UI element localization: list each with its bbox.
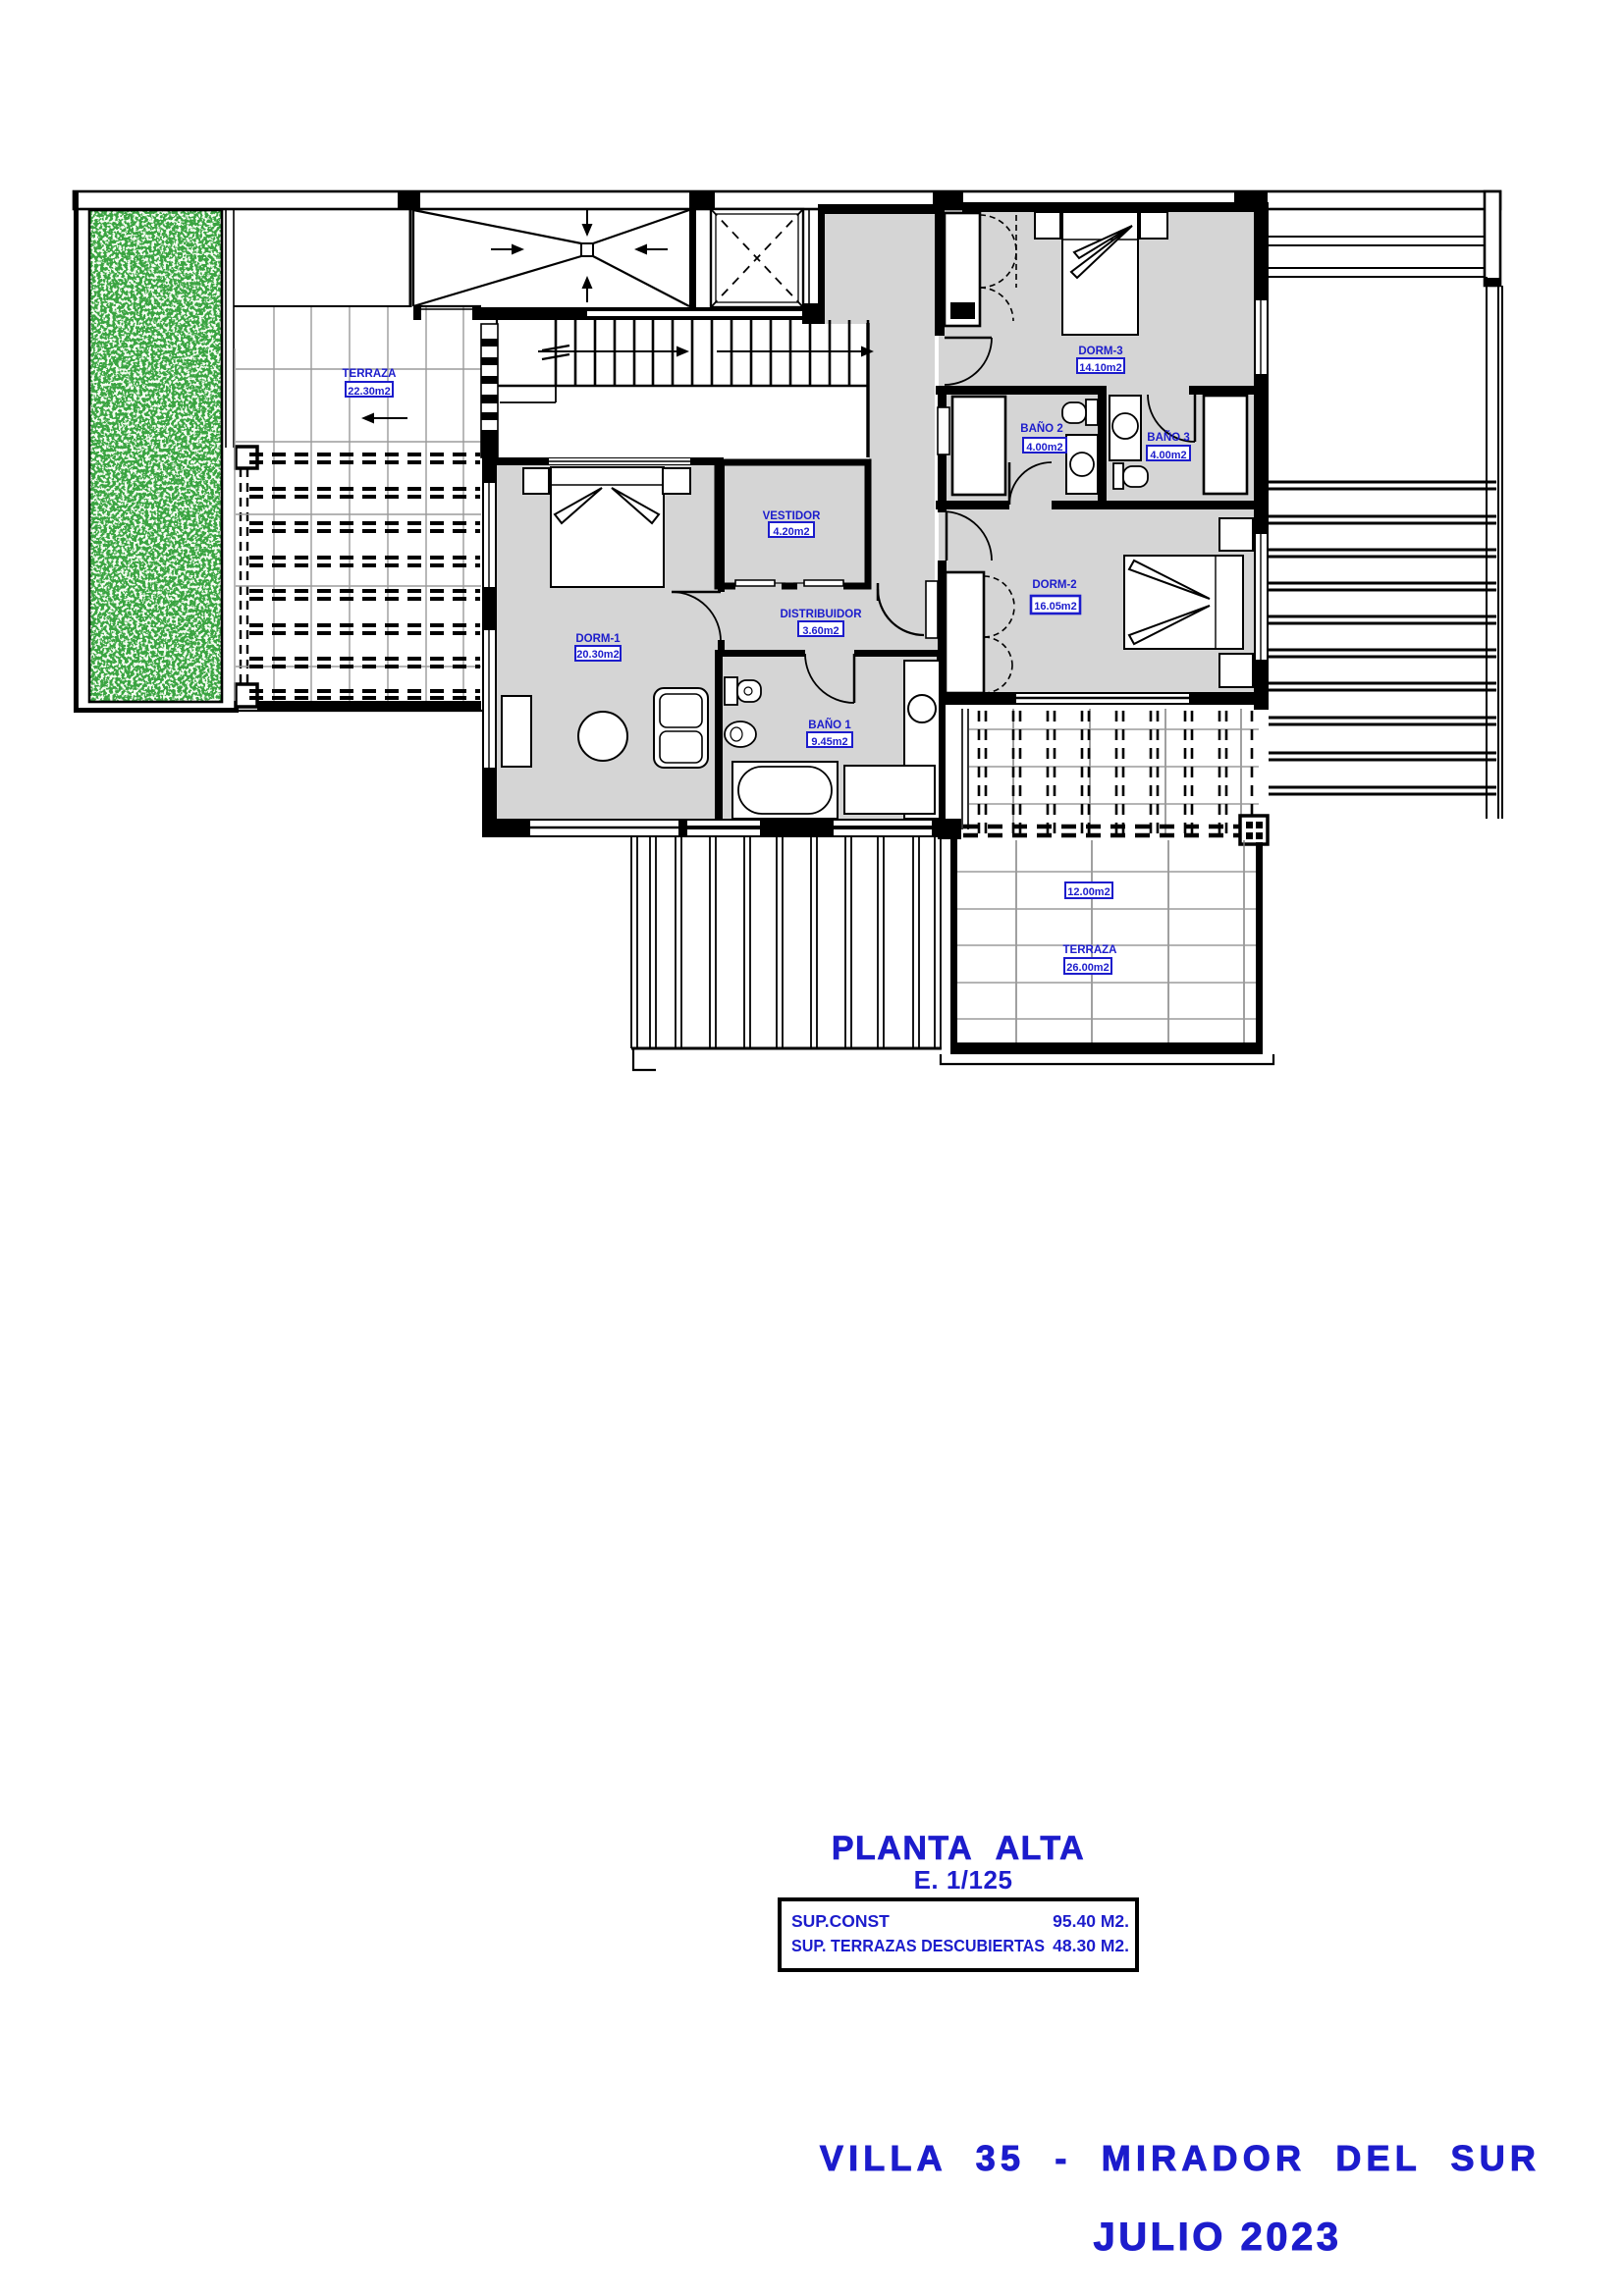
svg-text:95.40 M2.: 95.40 M2. bbox=[1053, 1911, 1129, 1931]
svg-text:20.30m2: 20.30m2 bbox=[576, 649, 619, 661]
svg-text:SUP. TERRAZAS DESCUBIERTAS: SUP. TERRAZAS DESCUBIERTAS bbox=[791, 1936, 1045, 1955]
svg-text:4.00m2: 4.00m2 bbox=[1150, 450, 1186, 461]
svg-text:BAÑO 2: BAÑO 2 bbox=[1020, 422, 1062, 435]
svg-text:DORM-1: DORM-1 bbox=[575, 633, 621, 645]
svg-text:SUP.CONST: SUP.CONST bbox=[791, 1911, 890, 1931]
svg-text:4.20m2: 4.20m2 bbox=[773, 526, 809, 538]
svg-text:TERRAZA: TERRAZA bbox=[343, 368, 397, 380]
svg-text:22.30m2: 22.30m2 bbox=[348, 386, 390, 398]
svg-text:DORM-3: DORM-3 bbox=[1078, 346, 1122, 357]
svg-text:E. 1/125: E. 1/125 bbox=[914, 1865, 1013, 1895]
svg-text:TERRAZA: TERRAZA bbox=[1063, 944, 1117, 956]
svg-text:4.00m2: 4.00m2 bbox=[1026, 442, 1062, 454]
svg-text:PLANTA ALTA: PLANTA ALTA bbox=[832, 1830, 1085, 1867]
svg-text:48.30 M2.: 48.30 M2. bbox=[1053, 1936, 1129, 1955]
svg-text:3.60m2: 3.60m2 bbox=[802, 625, 839, 637]
svg-text:VESTIDOR: VESTIDOR bbox=[763, 510, 821, 522]
svg-text:DORM-2: DORM-2 bbox=[1032, 579, 1076, 591]
svg-text:9.45m2: 9.45m2 bbox=[811, 736, 847, 748]
svg-text:14.10m2: 14.10m2 bbox=[1079, 362, 1121, 374]
svg-text:DISTRIBUIDOR: DISTRIBUIDOR bbox=[780, 609, 862, 620]
svg-text:JULIO 2023: JULIO 2023 bbox=[1094, 2216, 1342, 2259]
svg-text:16.05m2: 16.05m2 bbox=[1034, 601, 1076, 613]
svg-text:BAÑO 3: BAÑO 3 bbox=[1147, 431, 1189, 444]
svg-text:26.00m2: 26.00m2 bbox=[1066, 962, 1109, 974]
svg-text:BAÑO 1: BAÑO 1 bbox=[808, 719, 851, 731]
svg-text:VILLA 35 - MIRADOR DEL SUR: VILLA 35 - MIRADOR DEL SUR bbox=[820, 2138, 1541, 2178]
svg-text:12.00m2: 12.00m2 bbox=[1067, 886, 1110, 898]
